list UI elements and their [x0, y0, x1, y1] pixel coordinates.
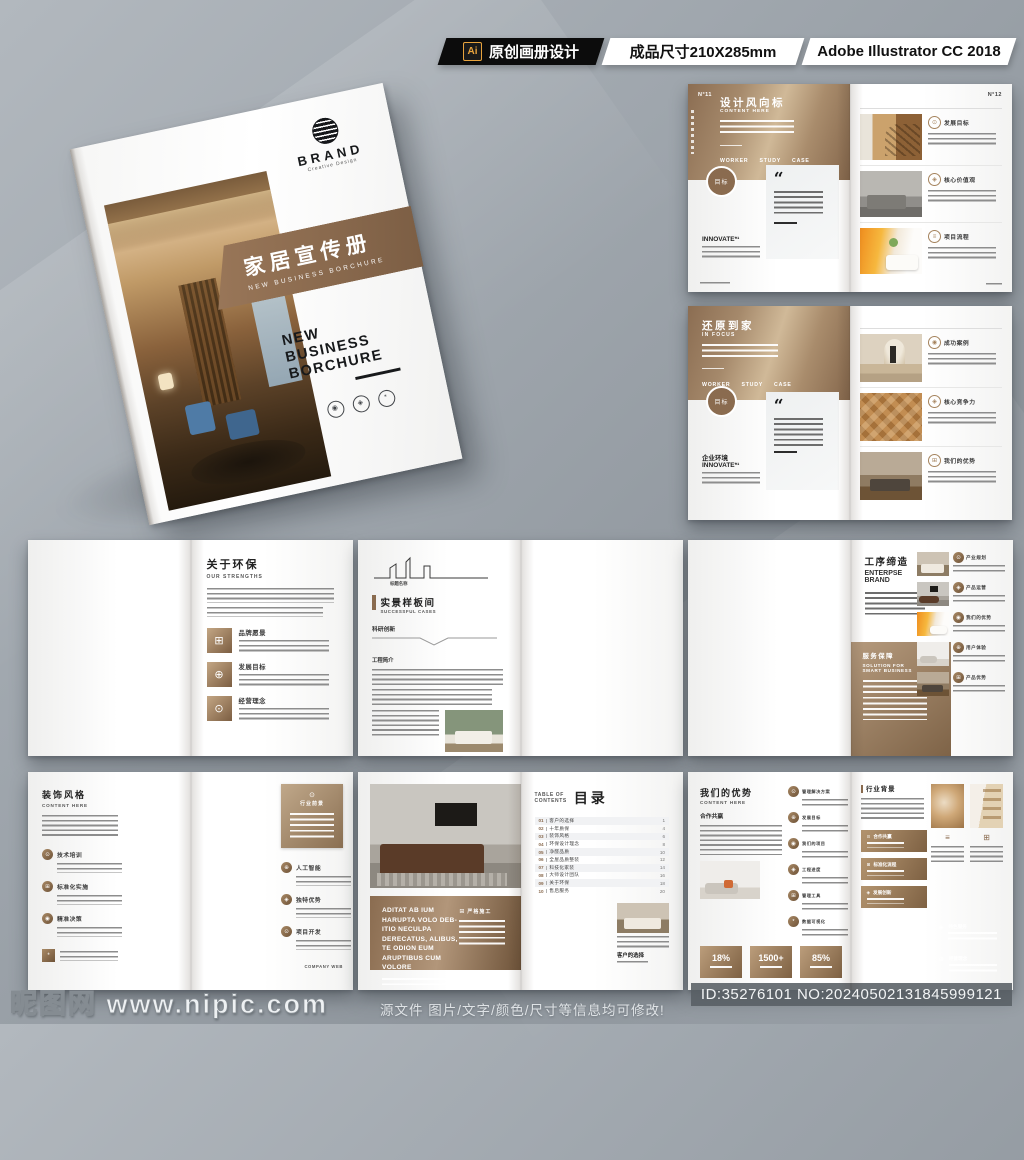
industry-card: ⊙ 行业前景	[281, 784, 343, 848]
mini-label: 产品运营	[966, 585, 986, 591]
text-lines	[928, 353, 996, 365]
gem-icon: ◈	[928, 173, 941, 186]
text-lines	[953, 685, 1005, 693]
text-lines	[865, 592, 925, 618]
share-icon: ◈	[788, 864, 799, 875]
text-lines	[810, 966, 832, 971]
list-icon: ≡	[928, 230, 941, 243]
feature-label: 成功案例	[944, 338, 969, 347]
text-lines	[60, 951, 118, 961]
section-title: 还原到家	[702, 318, 754, 333]
text-lines	[700, 825, 782, 855]
text-lines	[802, 825, 848, 833]
toc-row: 07科技化家装14	[535, 864, 670, 872]
toc-entry: 十年质保	[549, 826, 662, 832]
item-label: 精准决策	[57, 914, 82, 923]
software-badge: Adobe Illustrator CC 2018	[802, 38, 1017, 65]
compass-icon: *	[42, 949, 55, 962]
toc-page: 8	[662, 842, 665, 847]
tab-case: CASE	[774, 382, 792, 388]
stat-row: 18% 1500+ 85%	[700, 946, 842, 978]
item-label: 标准化实施	[57, 882, 89, 891]
asterisk-icon: *	[377, 388, 397, 408]
innovate-block: INNOVATE*¹	[702, 236, 760, 260]
toc-row: 08大师设计团队16	[535, 872, 670, 880]
green-bedroom-photo	[445, 710, 503, 752]
software-label: Adobe Illustrator CC 2018	[817, 43, 1000, 60]
panel-item: ◉ 科学研判	[863, 956, 925, 980]
panel-item: ⊙ 业务范围	[863, 924, 925, 948]
latin-banner: ADITAT AB IUM HARUPTA VOLO DEB-ITIO NECU…	[370, 896, 521, 970]
people-icon: ⊕	[207, 662, 232, 687]
text-lines	[207, 607, 324, 617]
mini-row: ◈产品运营	[917, 582, 1005, 606]
stat-value: 1500+	[758, 953, 783, 963]
site-url: www.nipic.com	[107, 989, 329, 1019]
rule	[774, 451, 797, 453]
cases-content: 标题名称 实景样板间 SUCCESSFUL CASES 科研创新 工程简介	[372, 554, 503, 752]
panel-icon: ⊙	[863, 924, 868, 948]
dot-icon: ⊕	[953, 642, 964, 653]
feature-list: ◉ 成功案例 ◈ 核心竞争力 ⊞	[860, 328, 1002, 508]
mini-photo	[917, 582, 949, 606]
toc-page: 4	[662, 826, 665, 831]
text-lines	[296, 908, 351, 918]
text-lines	[372, 710, 439, 736]
text-lines	[949, 964, 997, 974]
toc-num: 06	[539, 857, 544, 862]
text-lines	[928, 247, 996, 259]
target-icon: ⊙	[281, 926, 292, 937]
sec1-label: 科研创新	[372, 624, 503, 633]
quote-icon: “	[774, 398, 831, 415]
section-title: 实景样板间	[381, 595, 437, 609]
tab-worker: WORKER	[720, 158, 748, 164]
section-subtitle: CONTENT HERE	[720, 109, 770, 114]
spread-toc: ADITAT AB IUM HARUPTA VOLO DEB-ITIO NECU…	[358, 772, 683, 990]
text-lines	[928, 471, 996, 483]
item-label: 品牌愿景	[239, 628, 340, 637]
dot-icon: ◈	[953, 582, 964, 593]
text-lines	[867, 898, 905, 904]
rule	[774, 222, 797, 224]
text-lines	[873, 932, 921, 942]
craftsman-photo	[931, 784, 964, 828]
toc-num: 10	[539, 889, 544, 894]
page-number-left: N°11	[698, 92, 712, 98]
text-lines	[873, 964, 921, 974]
cover-english-title: NEW BUSINESS BORCHURE ◉ ◈ *	[280, 306, 431, 426]
about-content: 关于环保 OUR STRENGTHS ⊞ 品牌愿景 ⊕ 发展目标 ⊙ 经营理念	[207, 556, 340, 721]
panel-icon: ⊕	[939, 956, 944, 980]
cooperation-label: 合作共赢	[700, 811, 782, 820]
chip-icon: ◈	[867, 890, 871, 896]
feature-row: ◉ 成功案例	[860, 329, 1002, 388]
livingroom-sofa-photo	[370, 784, 521, 888]
curtain-room-photo	[700, 861, 760, 899]
goal-badge: 目标	[706, 386, 737, 417]
innovate-label: INNOVATE*¹	[702, 462, 760, 469]
mini-label: 用户体验	[966, 645, 986, 651]
toc-row: 06全屋品质整装12	[535, 856, 670, 864]
brown-header: 还原到家 IN FOCUS WORKER STUDY CASE	[688, 306, 850, 400]
item-label: 项目开发	[296, 927, 321, 936]
toc-page: 12	[660, 857, 665, 862]
org-chart-icon: ⊞	[207, 628, 232, 653]
text-lines	[970, 846, 1003, 862]
innovate-block: 企业环境 INNOVATE*¹	[702, 452, 760, 486]
toc-label: CONTENTS	[535, 798, 567, 805]
section-subtitle: CONTENT HERE	[700, 800, 782, 805]
section-title: 关于环保	[207, 556, 340, 572]
text-lines	[710, 966, 732, 971]
stat-value: 85%	[812, 953, 830, 963]
feature-label: 项目流程	[944, 232, 969, 241]
text-lines	[861, 798, 924, 822]
feature-row: ⊙ 发展目标	[860, 109, 1002, 166]
section-subtitle: CONTENT HERE	[42, 803, 118, 808]
chip: ⊞标准化流程	[861, 858, 927, 880]
text-lines	[774, 191, 823, 217]
text-lines	[867, 842, 905, 848]
text-lines	[802, 877, 848, 885]
toc-entry: 售后服务	[549, 888, 659, 894]
toc-entry: 大师设计团队	[549, 872, 659, 878]
text-lines	[948, 932, 996, 942]
tab-study: STUDY	[759, 158, 781, 164]
spread-in-focus: 还原到家 IN FOCUS WORKER STUDY CASE 目标 “ 企业环…	[688, 306, 1012, 520]
section-subtitle: BRAND	[865, 577, 925, 584]
toc-num: 03	[539, 834, 544, 839]
text-lines	[928, 190, 996, 202]
toc-page: 20	[660, 889, 665, 894]
title-bar	[372, 595, 376, 610]
toc-page: 6	[662, 834, 665, 839]
icon-item-label: 管理解决方案	[802, 789, 830, 795]
people-icon: ⊕	[788, 812, 799, 823]
toc-row: 01客户的选择1	[535, 817, 670, 825]
chip-icon: ⊙	[867, 834, 871, 840]
page-number-right: N°12	[988, 92, 1002, 98]
text-lines	[953, 565, 1005, 573]
grid-icon: ⊞	[928, 454, 941, 467]
stat-box: 85%	[800, 946, 842, 978]
chip-label: 标准化流程	[873, 862, 896, 868]
spread-style: 装饰风格 CONTENT HERE ⊙ 技术培训 ⊞ 标准化实施 ◉ 精准决策 …	[28, 772, 353, 990]
text-lines	[57, 895, 122, 905]
toc-row: 04环保设计理念8	[535, 840, 670, 848]
spread-design-trend: N°11 设计风向标 CONTENT HERE WORKER STUDY CAS…	[688, 84, 1012, 292]
strength-item: ⊙ 经营理念	[207, 696, 340, 721]
watermark-site: 昵图网 www.nipic.com	[10, 982, 328, 1021]
feature-label: 发展目标	[944, 118, 969, 127]
text-lines	[459, 920, 504, 946]
mini-title: 客户的选择	[617, 951, 669, 959]
text-lines	[239, 708, 329, 720]
panel-label: 特色服务	[948, 924, 1001, 930]
spread-about: 市场分析 CREATIVE / DESIGN 关于环保 OUR STRENGTH…	[28, 540, 353, 756]
chip: ⊙合作共赢	[861, 830, 927, 852]
text-lines	[296, 940, 351, 950]
text-lines	[867, 870, 905, 876]
text-lines	[928, 133, 996, 145]
toc-page: 16	[660, 873, 665, 878]
item-label: 经营理念	[239, 696, 340, 705]
text-lines	[953, 655, 1005, 663]
text-lines	[372, 669, 503, 685]
industry-header: 行业背景	[866, 784, 896, 793]
feature-list: ⊙ 发展目标 ◈ 核心价值观 ≡	[860, 108, 1002, 280]
banner-label: 严格施工	[467, 908, 491, 915]
text-lines	[928, 412, 996, 424]
toc-entry: 科技化家装	[549, 865, 659, 871]
strength-item: ⊕ 发展目标	[207, 662, 340, 687]
footer-caption	[700, 282, 730, 285]
icon-item-label: 发展目标	[802, 815, 821, 821]
gem-icon: ◈	[928, 395, 941, 408]
tab-study: STUDY	[741, 382, 763, 388]
person-icon: ◉	[788, 838, 799, 849]
mini-row: ⊞产品优势	[917, 672, 1005, 696]
image-id-badge: ID:35276101 NO:20240502131845999121	[691, 983, 1012, 1006]
wood-floor-photo	[860, 393, 922, 441]
title-bar	[861, 785, 864, 793]
sec2-label: 工程简介	[372, 656, 503, 664]
globe-icon: ◉	[326, 399, 346, 419]
panel-icon: ◉	[863, 956, 868, 980]
panel-icon: ◈	[939, 924, 944, 948]
toc-entry: 全屋品质整装	[549, 857, 659, 863]
text-lines	[382, 978, 453, 985]
toc-row: 02十年质保4	[535, 825, 670, 833]
text-lines	[42, 815, 118, 837]
quote-card: “	[766, 165, 839, 259]
mini-label: 我们的优势	[966, 615, 991, 621]
adobe-ai-icon: Ai	[463, 42, 482, 61]
panel-label: 经营理念	[949, 956, 1001, 962]
text-lines	[239, 640, 329, 652]
brand-logo-icon	[310, 115, 341, 146]
section-title: 工序缔造	[865, 554, 925, 568]
text-lines	[57, 927, 122, 937]
text-lines	[953, 595, 1005, 603]
toc-page: 10	[660, 850, 665, 855]
item-label: 技术培训	[57, 850, 82, 859]
staircase-photo	[970, 784, 1003, 828]
feature-label: 我们的优势	[944, 456, 976, 465]
toc-page: 1	[662, 818, 665, 823]
section-title: 我们的优势	[700, 786, 782, 799]
banner-side: ⊞ 严格施工	[459, 908, 504, 946]
skyline-label: 标题名称	[390, 581, 503, 587]
text-lines	[372, 689, 492, 705]
toc-page: 14	[660, 865, 665, 870]
mini-photo	[617, 903, 669, 933]
banner-text: ADITAT AB IUM HARUPTA VOLO DEB-ITIO NECU…	[382, 906, 460, 973]
org-icon: ⊞	[970, 833, 1003, 842]
text-lines	[702, 246, 760, 260]
section-subtitle: SUCCESSFUL CASES	[381, 609, 437, 614]
text-lines	[617, 961, 648, 964]
goal-badge: 目标	[706, 166, 737, 197]
strength-item: ⊞ 品牌愿景	[207, 628, 340, 653]
pen-icon: *	[788, 916, 799, 927]
icon-item-label: 数据可视化	[802, 919, 825, 925]
toc-num: 07	[539, 865, 544, 870]
toc-num: 04	[539, 842, 544, 847]
dot-icon: ◉	[953, 612, 964, 623]
toc-num: 08	[539, 873, 544, 878]
quote-icon: “	[774, 171, 831, 188]
text-lines	[617, 936, 669, 948]
stat-box: 18%	[700, 946, 742, 978]
toc-num: 05	[539, 850, 544, 855]
icon-item-label: 工程进度	[802, 867, 821, 873]
toc-num: 01	[539, 818, 544, 823]
text-lines	[57, 863, 122, 873]
text-lines	[239, 674, 329, 686]
icon-item-label: 我们的项目	[802, 841, 825, 847]
style-right-column: ⊙ 行业前景 ⊕ 人工智能 ◈ 独特优势 ⊙ 项目开发 COMPANY WEB	[281, 784, 343, 969]
size-label: 成品尺寸210X285mm	[630, 41, 777, 62]
chip-icon: ⊕	[281, 862, 292, 873]
feature-label: 核心价值观	[944, 175, 976, 184]
text-lines	[774, 418, 823, 446]
bedroom-photo	[860, 452, 922, 500]
stat-box: 1500+	[750, 946, 792, 978]
item-label: 独特优势	[296, 895, 321, 904]
wrench-icon: ⊞	[788, 890, 799, 901]
target-icon: ⊙	[928, 116, 941, 129]
chip-icon: ⊞	[867, 862, 871, 868]
arch-livingroom-photo	[860, 334, 922, 382]
trend-icon: ⊙	[288, 791, 336, 799]
mini-photo	[917, 612, 949, 636]
dot-icon: ⊞	[953, 672, 964, 683]
advantage-icon-column: ⊙管理解决方案 ⊕发展目标 ◉我们的项目 ◈工程进度 ⊞管理工具 *数据可视化	[788, 786, 840, 937]
mini-row: ⊕用户体验	[917, 642, 1005, 666]
env-label: 企业环境	[702, 452, 760, 462]
item-label: 人工智能	[296, 863, 321, 872]
clock-icon: ◉	[42, 913, 53, 924]
origin-badge: Ai 原创画册设计	[438, 38, 605, 65]
toc-entry: 环保设计理念	[549, 841, 662, 847]
advantage-left: 我们的优势 CONTENT HERE 合作共赢	[700, 786, 782, 899]
item-label: 发展目标	[239, 662, 340, 671]
toc-num: 02	[539, 826, 544, 831]
text-lines	[760, 966, 782, 971]
toc-row: 09关于环保18	[535, 879, 670, 887]
size-badge: 成品尺寸210X285mm	[602, 38, 805, 65]
medal-icon: ◉	[928, 336, 941, 349]
text-lines	[802, 903, 848, 911]
mini-photo	[917, 642, 949, 666]
toc-page: 18	[660, 881, 665, 886]
chip-label: 合作共赢	[873, 834, 891, 840]
style-left-column: 装饰风格 CONTENT HERE ⊙ 技术培训 ⊞ 标准化实施 ◉ 精准决策 …	[42, 788, 118, 962]
spread-advantage: 我们的优势 CONTENT HERE 合作共赢 ⊙管理解决方案 ⊕发展目标 ◉我…	[688, 772, 1013, 990]
spread-showroom: 标题名称 实景样板间 SUCCESSFUL CASES 科研创新 工程简介 “	[358, 540, 683, 756]
watermark-note: 源文件 图片/文字/颜色/尺寸等信息均可修改!	[380, 999, 665, 1019]
feature-row: ◈ 核心竞争力	[860, 388, 1002, 447]
toc-row: 10售后服务20	[535, 887, 670, 895]
bar-chart-icon: ≡	[931, 833, 964, 842]
tab-row: WORKER STUDY CASE	[720, 158, 810, 164]
toc-entry: 净醛品质	[549, 849, 659, 855]
dartboard-icon: ⊙	[207, 696, 232, 721]
text-lines	[931, 846, 964, 862]
text-lines	[296, 876, 351, 886]
panel-label: 业务范围	[873, 924, 925, 930]
toc-num: 09	[539, 881, 544, 886]
toc-entry: 客户的选择	[549, 818, 662, 824]
text-lines	[802, 929, 848, 937]
feature-row: ⊞ 我们的优势	[860, 447, 1002, 505]
site-name: 昵图网	[10, 989, 97, 1019]
enterprise-header: 工序缔造 ENTERPSE BRAND	[865, 554, 925, 618]
icon-item-label: 管理工具	[802, 893, 821, 899]
mini-row: ◉我们的优势	[917, 612, 1005, 636]
skyline-graphic	[372, 554, 492, 580]
innovate-label: INNOVATE*¹	[702, 236, 760, 243]
tab-case: CASE	[792, 158, 810, 164]
panel-item: ◈ 特色服务	[939, 924, 1001, 948]
text-lines	[953, 625, 1005, 633]
section-title: 设计风向标	[720, 95, 785, 110]
stat-value: 18%	[712, 953, 730, 963]
chevron-divider	[372, 635, 497, 647]
toc-entry: 装饰风格	[549, 833, 662, 839]
text-lines	[702, 472, 760, 486]
feature-label: 核心竞争力	[944, 397, 976, 406]
person-icon: ◈	[351, 394, 371, 414]
section-subtitle: ENTERPSE	[865, 570, 925, 577]
spread-enterprise: 价值观念 工序缔造 ENTERPSE BRAND 服务保障 SOLUTION F…	[688, 540, 1013, 756]
text-lines	[802, 851, 848, 859]
text-lines	[720, 120, 794, 137]
brand-block: BRAND Creative Design	[258, 104, 398, 181]
section-subtitle: OUR STRENGTHS	[207, 574, 340, 580]
orange-room-photo	[860, 228, 922, 274]
toc-entry: 关于环保	[549, 880, 659, 886]
quote-card: “	[766, 392, 839, 490]
panel-item: ⊕ 经营理念	[939, 956, 1001, 980]
industry-left-col: 行业背景 ⊙合作共赢 ⊞标准化流程 ◈发展创新	[861, 784, 927, 908]
mini-photo	[917, 552, 949, 576]
feature-row: ≡ 项目流程	[860, 223, 1002, 279]
toc-list: 01客户的选择1 02十年质保4 03装饰风格6 04环保设计理念8 05净醛品…	[535, 817, 670, 895]
bottom-brown-panel: ⊙ 业务范围 ◈ 特色服务 ◉ 科学研判 ⊕ 经营理念	[851, 914, 1014, 990]
gear-icon: ⊙	[788, 786, 799, 797]
section-title: 装饰风格	[42, 788, 118, 801]
mini-feature-column: ⊙产业规划 ◈产品运营 ◉我们的优势 ⊕用户体验 ⊞产品优势	[917, 552, 1005, 696]
mini-row: ⊙产业规划	[917, 552, 1005, 576]
dot-icon: ⊙	[953, 552, 964, 563]
mini-label: 产品优势	[966, 675, 986, 681]
gear-icon: ⊙	[42, 849, 53, 860]
panel-label: 科学研判	[873, 956, 925, 962]
text-lines	[290, 813, 334, 839]
toc-row: 03装饰风格6	[535, 833, 670, 841]
card-title: 行业前景	[288, 800, 336, 807]
toc-row: 05净醛品质10	[535, 848, 670, 856]
toc-content: TABLE OF CONTENTS 目录 01客户的选择1 02十年质保4 03…	[535, 788, 670, 964]
hardhat-icon: ⊞	[459, 908, 464, 915]
text-lines	[207, 588, 334, 603]
livingroom-photo	[860, 171, 922, 217]
stair-photo	[860, 114, 922, 160]
chip: ◈发展创新	[861, 886, 927, 908]
